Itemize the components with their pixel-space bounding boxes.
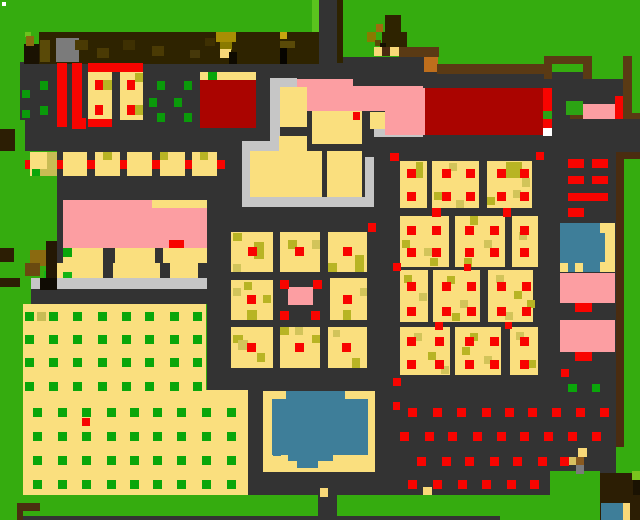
marker-dot: [442, 192, 451, 201]
map-tile-bm: [280, 32, 287, 39]
marker-dot: [522, 307, 531, 316]
crop-dot: [33, 480, 42, 489]
crop-dot: [153, 432, 162, 441]
crop-dot: [107, 456, 116, 465]
map-tile-g: [616, 447, 640, 473]
map-tile-k1: [135, 73, 143, 82]
map-tile-g: [437, 47, 544, 64]
marker-dot: [497, 169, 506, 178]
map-tile-c: [319, 0, 337, 63]
map-tile-bl: [40, 278, 57, 290]
crop-dot: [25, 358, 34, 367]
marker-dot: [295, 247, 304, 256]
crop-dot: [130, 408, 139, 417]
crop-dot: [153, 456, 162, 465]
map-tile-bf: [583, 56, 592, 79]
map-tile-gd2: [184, 81, 192, 90]
map-tile-bl8: [40, 40, 50, 62]
map-tile-k2: [424, 248, 432, 256]
map-tile-k1: [200, 152, 208, 160]
marker-dot: [528, 408, 537, 417]
marker-dot: [465, 337, 474, 346]
marker-dot: [600, 408, 609, 417]
crop-dot: [122, 335, 131, 344]
map-tile-tl: [623, 503, 630, 520]
crop-dot: [153, 408, 162, 417]
crop-dot: [145, 335, 154, 344]
marker-dot: [442, 169, 451, 178]
map-tile-t: [163, 248, 207, 263]
crop-dot: [177, 456, 186, 465]
marker-dot: [248, 247, 257, 256]
marker-dot: [435, 360, 444, 369]
map-tile-k1: [462, 347, 470, 355]
marker-dot: [280, 311, 289, 320]
crop-dot: [107, 480, 116, 489]
map-tile-k1: [233, 233, 242, 241]
marker-dot: [560, 457, 569, 466]
marker-dot: [442, 457, 451, 466]
map-tile-t: [170, 263, 198, 278]
map-tile-gl: [242, 197, 373, 207]
marker-dot: [280, 280, 289, 289]
crop-dot: [73, 312, 82, 321]
map-tile-r: [95, 105, 103, 115]
crop-dot: [130, 432, 139, 441]
map-tile-g: [592, 64, 623, 79]
map-tile-r: [505, 322, 512, 329]
marker-dot: [417, 457, 426, 466]
map-tile-r: [72, 118, 86, 129]
map-tile-r: [390, 153, 399, 161]
marker-dot: [513, 457, 522, 466]
marker-dot: [465, 360, 474, 369]
map-tile-k1: [328, 263, 337, 272]
map-tile-t: [152, 200, 207, 208]
map-tile-r: [432, 208, 441, 217]
crop-dot: [177, 408, 186, 417]
map-tile-k1: [402, 240, 410, 248]
marker-dot: [435, 337, 444, 346]
map-tile-tl: [423, 487, 432, 495]
marker-dot: [520, 169, 529, 178]
map-tile-w: [2, 2, 6, 6]
marker-dot: [520, 248, 529, 257]
map-tile-r: [592, 176, 608, 184]
crop-dot: [122, 358, 131, 367]
crop-dot: [82, 432, 91, 441]
marker-dot: [497, 432, 506, 441]
marker-dot: [311, 311, 320, 320]
marker-dot: [295, 343, 304, 352]
map-tile-bl7: [97, 48, 109, 58]
map-tile-r: [575, 352, 592, 361]
map-tile-k1: [352, 358, 360, 368]
crop-dot: [73, 382, 82, 391]
map-tile-r: [568, 176, 584, 184]
crop-dot: [193, 358, 202, 367]
crop-dot: [227, 456, 236, 465]
marker-dot: [473, 432, 482, 441]
map-tile-r: [393, 402, 400, 410]
map-tile-bl9: [190, 50, 200, 58]
marker-dot: [497, 282, 506, 291]
crop-dot: [153, 480, 162, 489]
marker-dot: [442, 282, 451, 291]
map-tile-r: [568, 193, 608, 201]
marker-dot: [507, 480, 516, 489]
map-tile-r: [568, 159, 584, 168]
map-tile-r: [57, 63, 67, 127]
map-tile-gy: [576, 465, 584, 474]
map-tile-blu: [272, 399, 368, 455]
map-tile-k1: [280, 327, 289, 335]
map-tile-gd2: [184, 113, 192, 122]
map-tile-bl6: [205, 38, 215, 46]
crop-dot: [82, 408, 91, 417]
map-tile-k1: [135, 105, 143, 115]
map-tile-r: [368, 223, 376, 232]
map-tile-k1: [452, 313, 460, 321]
map-tile-k1: [247, 310, 257, 320]
map-tile-t: [560, 263, 568, 272]
map-tile-dr: [200, 80, 256, 128]
map-tile-bf: [437, 64, 544, 74]
marker-dot: [407, 307, 416, 316]
map-tile-gd2: [157, 81, 165, 90]
map-tile-r: [72, 63, 82, 118]
map-tile-t: [63, 152, 87, 176]
marker-dot: [465, 226, 474, 235]
map-tile-r: [615, 96, 623, 119]
marker-dot: [343, 295, 352, 304]
map-tile-bd: [0, 248, 14, 262]
marker-dot: [247, 295, 256, 304]
crop-dot: [130, 480, 139, 489]
crop-dot: [202, 480, 211, 489]
crop-dot: [98, 312, 107, 321]
map-tile-gb: [566, 101, 583, 115]
map-tile-blu: [297, 461, 318, 468]
map-tile-r: [393, 263, 401, 271]
marker-dot: [458, 480, 467, 489]
crop-dot: [193, 312, 202, 321]
map-tile-bf: [623, 113, 640, 119]
map-tile-bs: [337, 0, 343, 63]
marker-dot: [466, 169, 475, 178]
marker-dot: [490, 337, 499, 346]
map-tile-k2: [333, 330, 340, 337]
crop-dot: [49, 335, 58, 344]
map-tile-k1: [160, 152, 168, 160]
map-tile-r: [82, 418, 90, 426]
marker-dot: [408, 408, 417, 417]
marker-dot: [400, 432, 409, 441]
map-tile-bl4: [633, 480, 640, 495]
map-tile-k2: [522, 178, 530, 187]
crop-dot: [25, 312, 34, 321]
map-tile-b6a: [25, 263, 40, 276]
map-tile-k1: [514, 291, 522, 299]
marker-dot: [568, 432, 577, 441]
crop-dot: [145, 382, 154, 391]
map-tile-bv: [616, 159, 624, 447]
map-tile-gd2: [174, 98, 182, 107]
map-tile-k1: [434, 192, 442, 200]
map-tile-k1: [103, 80, 112, 90]
map-tile-k1: [416, 162, 423, 178]
map-tile-c: [540, 474, 550, 497]
map-tile-c: [623, 119, 640, 152]
map-tile-t: [455, 216, 505, 267]
map-tile-tl: [374, 47, 382, 56]
game-world-map[interactable]: [0, 0, 640, 520]
map-tile-bg: [26, 36, 34, 46]
marker-dot: [490, 360, 499, 369]
map-tile-p: [288, 287, 313, 305]
marker-dot: [457, 408, 466, 417]
marker-dot: [497, 192, 506, 201]
map-tile-gd2: [149, 98, 157, 107]
marker-dot: [576, 408, 585, 417]
map-tile-bf: [544, 56, 552, 79]
marker-dot: [465, 457, 474, 466]
crop-dot: [58, 432, 67, 441]
crop-dot: [49, 382, 58, 391]
map-tile-bl7: [75, 40, 88, 50]
marker-dot: [433, 480, 442, 489]
crop-dot: [227, 408, 236, 417]
map-tile-c: [23, 516, 500, 520]
marker-dot: [490, 457, 499, 466]
crop-dot: [33, 408, 42, 417]
screenshot-stage: [0, 0, 640, 520]
marker-dot: [520, 337, 529, 346]
marker-dot: [343, 247, 352, 256]
marker-dot: [247, 343, 256, 352]
map-tile-gd: [208, 72, 217, 80]
marker-dot: [407, 248, 416, 257]
crop-dot: [145, 312, 154, 321]
crop-dot: [73, 335, 82, 344]
marker-dot: [407, 169, 416, 178]
map-tile-bf: [399, 47, 439, 57]
map-tile-t: [250, 151, 322, 197]
map-tile-blu: [601, 503, 623, 520]
marker-dot: [538, 457, 547, 466]
map-tile-k2: [505, 312, 513, 320]
map-tile-p: [583, 104, 615, 119]
map-tile-r: [540, 152, 544, 159]
map-tile-t: [575, 263, 583, 272]
map-tile-bd: [0, 129, 15, 151]
map-tile-k2: [312, 240, 320, 249]
map-tile-k2: [360, 288, 367, 296]
marker-dot: [544, 432, 553, 441]
marker-dot: [490, 248, 499, 257]
crop-dot: [49, 312, 58, 321]
crop-dot: [25, 335, 34, 344]
map-tile-lg3: [632, 471, 640, 480]
map-tile-r: [353, 112, 360, 120]
map-tile-bl5: [229, 52, 237, 64]
map-tile-r: [568, 208, 584, 217]
marker-dot: [425, 432, 434, 441]
map-tile-k1: [430, 258, 438, 266]
map-tile-t: [512, 216, 538, 267]
map-tile-tl: [390, 47, 399, 56]
map-tile-k2: [419, 293, 427, 301]
marker-dot: [408, 480, 417, 489]
map-tile-r: [127, 80, 135, 90]
crop-dot: [202, 408, 211, 417]
map-tile-r: [127, 105, 135, 115]
crop-dot: [170, 358, 179, 367]
map-tile-bf: [623, 56, 632, 113]
map-tile-k2: [456, 200, 464, 208]
map-tile-k1: [312, 335, 320, 343]
map-tile-g: [550, 471, 600, 497]
map-tile-r: [592, 159, 608, 168]
crop-dot: [170, 335, 179, 344]
map-tile-p: [560, 273, 615, 303]
marker-dot: [433, 408, 442, 417]
map-tile-gd2: [40, 106, 48, 115]
map-tile-w: [543, 128, 552, 136]
map-tile-gd2: [157, 113, 165, 122]
map-tile-r: [169, 240, 184, 248]
map-tile-r: [543, 88, 552, 111]
map-tile-k: [47, 152, 57, 176]
marker-dot: [313, 280, 322, 289]
crop-dot: [58, 456, 67, 465]
map-tile-bgl: [216, 32, 236, 42]
marker-dot: [407, 226, 416, 235]
map-tile-c: [31, 288, 207, 304]
crop-dot: [177, 432, 186, 441]
map-tile-gd2: [40, 81, 48, 90]
map-tile-gb: [543, 111, 552, 119]
marker-dot: [520, 360, 529, 369]
map-tile-gd: [63, 248, 72, 257]
marker-dot: [432, 248, 441, 257]
map-tile-bl3: [280, 48, 287, 64]
map-tile-gd2: [22, 110, 30, 118]
marker-dot: [466, 192, 475, 201]
map-tile-bl7: [152, 46, 164, 56]
map-tile-r: [88, 119, 112, 127]
marker-dot: [592, 432, 601, 441]
map-tile-k1: [343, 310, 351, 320]
map-tile-c: [248, 390, 263, 497]
map-tile-dr: [425, 88, 543, 135]
map-tile-bl6: [123, 40, 135, 50]
map-tile-r: [464, 264, 471, 271]
map-tile-r: [393, 378, 401, 386]
crop-dot: [98, 335, 107, 344]
crop-dot: [107, 432, 116, 441]
map-tile-blu: [273, 448, 281, 456]
crop-dot: [227, 480, 236, 489]
map-tile-r: [575, 303, 592, 312]
crop-dot: [107, 408, 116, 417]
map-tile-gd: [568, 384, 577, 392]
map-tile-k2: [233, 288, 241, 296]
map-tile-gd: [592, 384, 600, 392]
map-tile-r: [88, 63, 143, 72]
map-tile-t: [327, 151, 362, 197]
map-tile-bl8: [280, 41, 295, 48]
map-tile-k1: [528, 360, 536, 368]
map-tile-r: [503, 208, 511, 217]
crop-dot: [25, 382, 34, 391]
map-tile-g: [552, 64, 583, 72]
map-tile-r: [543, 119, 552, 128]
marker-dot: [505, 408, 514, 417]
crop-dot: [227, 432, 236, 441]
map-tile-t: [115, 248, 155, 263]
crop-dot: [202, 432, 211, 441]
map-tile-o2: [376, 24, 383, 32]
map-tile-r: [561, 369, 569, 377]
map-tile-r: [435, 322, 443, 330]
marker-dot: [520, 192, 529, 201]
map-tile-blu: [286, 391, 345, 399]
marker-dot: [530, 480, 539, 489]
marker-dot: [497, 307, 506, 316]
map-tile-k1: [487, 197, 495, 205]
crop-dot: [98, 382, 107, 391]
marker-dot: [448, 432, 457, 441]
map-tile-bd: [0, 278, 20, 287]
marker-dot: [407, 337, 416, 346]
map-tile-t: [127, 152, 152, 176]
crop-dot: [170, 312, 179, 321]
map-tile-k2: [484, 240, 492, 248]
map-tile-td: [568, 457, 576, 465]
crop-dot: [122, 312, 131, 321]
marker-dot: [522, 282, 531, 291]
map-tile-bl4: [24, 44, 39, 64]
map-tile-k2: [233, 264, 241, 272]
marker-dot: [520, 432, 529, 441]
marker-dot: [465, 248, 474, 257]
map-tile-k: [40, 169, 48, 176]
crop-dot: [193, 335, 202, 344]
map-tile-bnd: [382, 47, 390, 56]
marker-dot: [552, 408, 561, 417]
marker-dot: [407, 192, 416, 201]
map-tile-k1: [355, 255, 364, 272]
map-tile-k1: [103, 152, 112, 160]
map-tile-brx: [576, 457, 584, 465]
crop-dot: [73, 358, 82, 367]
crop-dot: [58, 480, 67, 489]
map-tile-t: [113, 263, 160, 278]
map-tile-k1: [263, 295, 271, 303]
map-tile-r: [95, 80, 103, 90]
map-tile-k1: [257, 353, 265, 362]
crop-dot: [33, 432, 42, 441]
crop-dot: [98, 358, 107, 367]
crop-dot: [145, 358, 154, 367]
marker-dot: [467, 307, 476, 316]
crop-dot: [33, 456, 42, 465]
marker-dot: [490, 226, 499, 235]
crop-dot: [122, 382, 131, 391]
marker-dot: [467, 282, 476, 291]
map-tile-gd: [32, 169, 40, 176]
